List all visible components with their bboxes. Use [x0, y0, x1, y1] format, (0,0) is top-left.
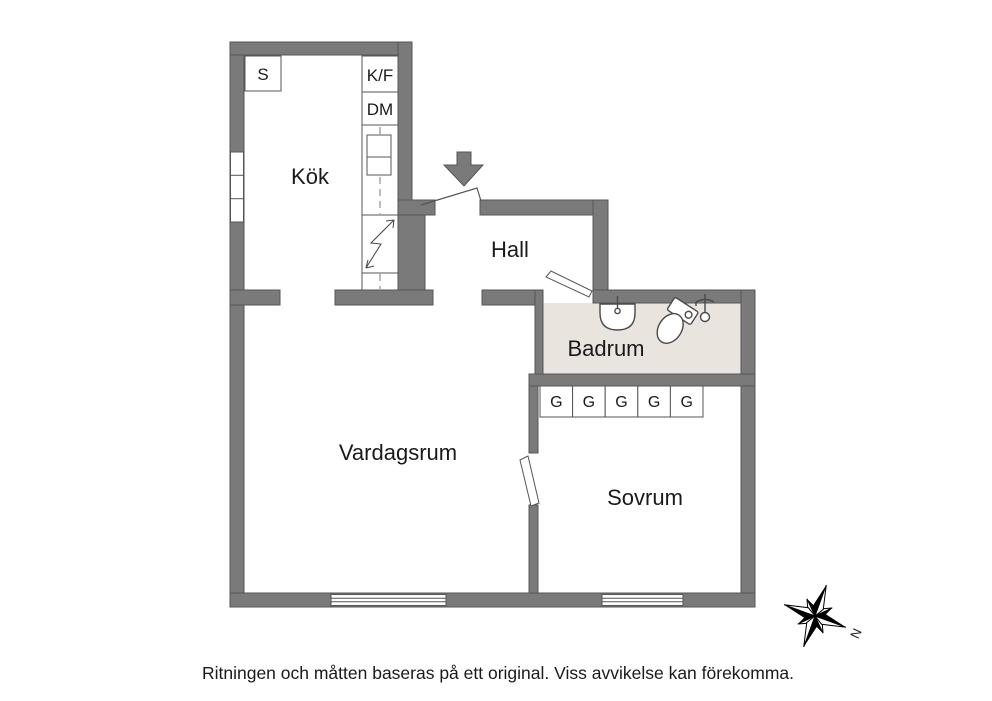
stove-icon [362, 215, 398, 273]
wall-right-outer [741, 290, 755, 607]
wardrobe-label: G [615, 394, 627, 411]
wall-divider-kitchen-stub [335, 290, 433, 305]
wardrobe-label: G [583, 394, 595, 411]
compass-star [773, 574, 858, 659]
wall-sovrum-west-upper [529, 386, 538, 453]
room-label-badrum: Badrum [567, 336, 644, 361]
wall-sovrum-west-lower [529, 505, 538, 593]
wall-kitchen-top [230, 42, 412, 55]
wardrobe-label: G [648, 394, 660, 411]
compass-north-label: N [847, 626, 865, 641]
wall-kitchen-right-upper [398, 42, 412, 202]
dishwasher-label: DM [367, 100, 393, 119]
wall-divider-left-stub [230, 290, 280, 305]
wardrobe-label: G [680, 394, 692, 411]
entrance-arrow-icon [444, 152, 483, 186]
window-vardagsrum [331, 595, 446, 606]
floorplan-drawing: G G G G G Kök Hall Badrum Vardagsrum Sov… [0, 0, 992, 701]
disclaimer-text: Ritningen och måtten baseras på ett orig… [202, 663, 794, 683]
wall-badrum-bottom [529, 374, 755, 386]
wall-badrum-west [535, 290, 543, 378]
room-label-vardagsrum: Vardagsrum [339, 440, 457, 465]
wall-hall-right [593, 200, 608, 303]
wall-left-outer [230, 42, 244, 607]
wall-hall-top [480, 200, 593, 215]
fridge-freezer-label: K/F [367, 66, 393, 85]
compass-rose-icon: N [773, 574, 876, 665]
wardrobe-label: G [550, 394, 562, 411]
entrance-door-leaf [421, 188, 481, 205]
wall-hall-left [398, 215, 425, 292]
sink-cabinet-label: S [257, 65, 268, 84]
room-label-hall: Hall [491, 237, 529, 262]
window-kok-left [231, 152, 244, 222]
wall-divider-hall-stub [482, 290, 539, 305]
window-sovrum [602, 595, 683, 606]
kitchen-sink-icon [367, 135, 391, 175]
room-label-kok: Kök [291, 164, 330, 189]
room-label-sovrum: Sovrum [607, 485, 683, 510]
floorplan-page: G G G G G Kök Hall Badrum Vardagsrum Sov… [0, 0, 992, 701]
